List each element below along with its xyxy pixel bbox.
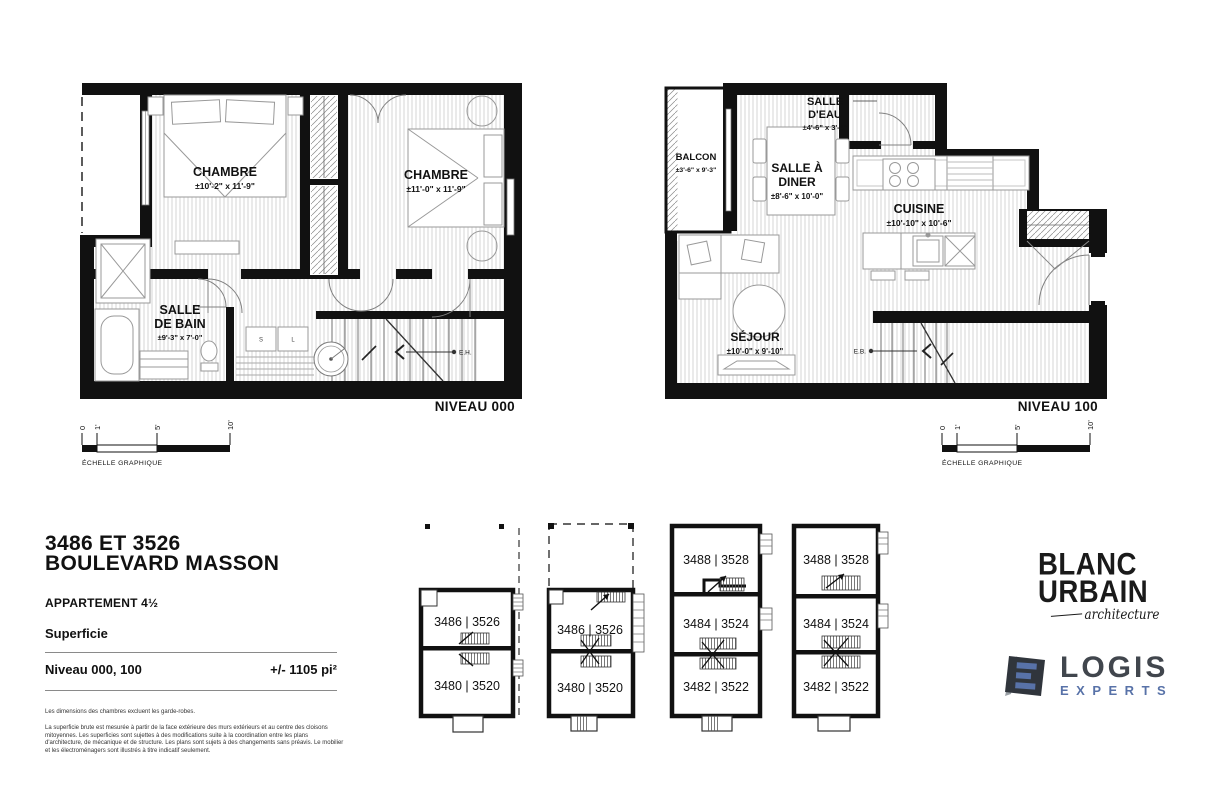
scale-tick-0: 0 bbox=[78, 426, 87, 430]
disclaimer-note-1: Les dimensions des chambres excluent les… bbox=[45, 709, 345, 717]
scale-tick-5: 5' bbox=[1013, 424, 1022, 430]
unit-numbers: 3486 | 3526 bbox=[434, 615, 500, 629]
room-dims-diner: ±8'-6" x 10'-0" bbox=[771, 192, 823, 201]
unit-numbers: 3486 | 3526 bbox=[557, 623, 623, 637]
room-dims-chambre1: ±10'-2" x 11'-9" bbox=[195, 181, 255, 191]
scale-tick-10: 10' bbox=[226, 420, 235, 430]
key-plan-building-4: 3488 | 3528 3484 | 3524 3482 | 3522 bbox=[790, 516, 890, 756]
floorplan-niveau-000: CHAMBRE ±10'-2" x 11'-9" CHAMBRE ±11'-0"… bbox=[78, 83, 522, 399]
scale-caption: ÉCHELLE GRAPHIQUE bbox=[942, 458, 1023, 467]
unit-numbers: 3488 | 3528 bbox=[803, 553, 869, 567]
unit-numbers: 3482 | 3522 bbox=[683, 680, 749, 694]
tagline-text: architecture bbox=[1084, 607, 1159, 623]
unit-numbers: 3480 | 3520 bbox=[557, 681, 623, 695]
plan-title-niveau-000: NIVEAU 000 bbox=[380, 399, 515, 414]
blanc-urbain-word-2: URBAIN bbox=[1038, 579, 1159, 607]
tagline-swash bbox=[1050, 613, 1081, 617]
logis-experts-icon bbox=[1003, 652, 1051, 700]
unit-numbers: 3480 | 3520 bbox=[434, 679, 500, 693]
room-dims-sejour: ±10'-0" x 9'-10" bbox=[727, 347, 784, 356]
room-label-diner-1: SALLE À bbox=[771, 160, 823, 175]
scale-tick-1: 1' bbox=[93, 424, 102, 430]
key-plan-building-3: 3488 | 3528 3484 | 3524 3482 | 3522 bbox=[668, 516, 780, 756]
exterior-notch bbox=[80, 95, 140, 235]
room-label-chambre2: CHAMBRE bbox=[404, 168, 468, 182]
blanc-urbain-logo: BLANC URBAIN architecture bbox=[1038, 551, 1159, 623]
plan-title-niveau-100: NIVEAU 100 bbox=[963, 399, 1098, 414]
room-label-chambre1: CHAMBRE bbox=[193, 165, 257, 179]
scale-bar-left: 0 1' 5' 10' ÉCHELLE GRAPHIQUE bbox=[72, 416, 247, 470]
scale-tick-10: 10' bbox=[1086, 420, 1095, 430]
disclaimer-note-2: La superficie brute est mesurée à partir… bbox=[45, 725, 345, 755]
unit-numbers: 3488 | 3528 bbox=[683, 553, 749, 567]
plan-sheet: CHAMBRE ±10'-2" x 11'-9" CHAMBRE ±11'-0"… bbox=[0, 0, 1224, 792]
appliance-label-s: S bbox=[259, 338, 263, 344]
room-dims-balcon: ±3'-6" x 9'-3" bbox=[676, 167, 717, 174]
divider-line bbox=[45, 690, 337, 691]
project-address: 3486 ET 3526 BOULEVARD MASSON bbox=[45, 534, 345, 574]
room-dims-bain: ±9'-3" x 7'-0" bbox=[158, 333, 203, 342]
room-label-eau-2: D'EAU bbox=[808, 109, 842, 121]
room-label-diner-2: DINER bbox=[778, 175, 816, 189]
room-dims-eau: ±4'-6" x 3'-6" bbox=[803, 123, 848, 132]
scale-tick-1: 1' bbox=[953, 424, 962, 430]
room-label-cuisine: CUISINE bbox=[894, 202, 945, 216]
unit-numbers: 3482 | 3522 bbox=[803, 680, 869, 694]
stair-label-eb: E.B. bbox=[854, 349, 866, 356]
apartment-type: APPARTEMENT 4½ bbox=[45, 596, 158, 610]
room-label-eau-1: SALLE bbox=[807, 96, 843, 108]
unit-numbers: 3484 | 3524 bbox=[803, 617, 869, 631]
room-label-sejour: SÉJOUR bbox=[730, 329, 780, 344]
address-line1: 3486 ET 3526 bbox=[45, 534, 345, 554]
key-plan-building-2: 3486 | 3526 3480 | 3520 bbox=[543, 518, 655, 758]
address-line2: BOULEVARD MASSON bbox=[45, 554, 345, 574]
key-plan-building-1: 3486 | 3526 3480 | 3520 bbox=[413, 518, 525, 758]
stair-label-eh: E.H. bbox=[459, 350, 472, 357]
window bbox=[507, 179, 514, 235]
dashed-upper-outline bbox=[549, 524, 633, 590]
room-dims-cuisine: ±10'-10" x 10'-6" bbox=[887, 218, 952, 228]
room-label-bain-2: DE BAIN bbox=[154, 317, 205, 331]
divider-line bbox=[45, 652, 337, 653]
superficie-label: Superficie bbox=[45, 626, 108, 641]
area-value: +/- 1105 pi² bbox=[45, 662, 337, 677]
scale-tick-0: 0 bbox=[938, 426, 947, 430]
closets bbox=[310, 95, 338, 275]
logis-word: LOGIS bbox=[1060, 654, 1173, 682]
floorplan-niveau-100: BALCON ±3'-6" x 9'-3" SALLE D'EAU ±4'-6"… bbox=[663, 83, 1107, 399]
scale-bar-right: 0 1' 5' 10' ÉCHELLE GRAPHIQUE bbox=[932, 416, 1107, 470]
scale-tick-5: 5' bbox=[153, 424, 162, 430]
blanc-urbain-tagline: architecture bbox=[1038, 607, 1159, 623]
room-label-balcon: BALCON bbox=[676, 152, 717, 163]
room-dims-chambre2: ±11'-0" x 11'-9" bbox=[406, 184, 465, 194]
room-label-bain-1: SALLE bbox=[160, 303, 201, 317]
unit-numbers: 3484 | 3524 bbox=[683, 617, 749, 631]
logis-experts-logo: LOGIS EXPERTS bbox=[1003, 652, 1173, 700]
experts-word: EXPERTS bbox=[1060, 683, 1173, 698]
scale-caption: ÉCHELLE GRAPHIQUE bbox=[82, 458, 163, 467]
